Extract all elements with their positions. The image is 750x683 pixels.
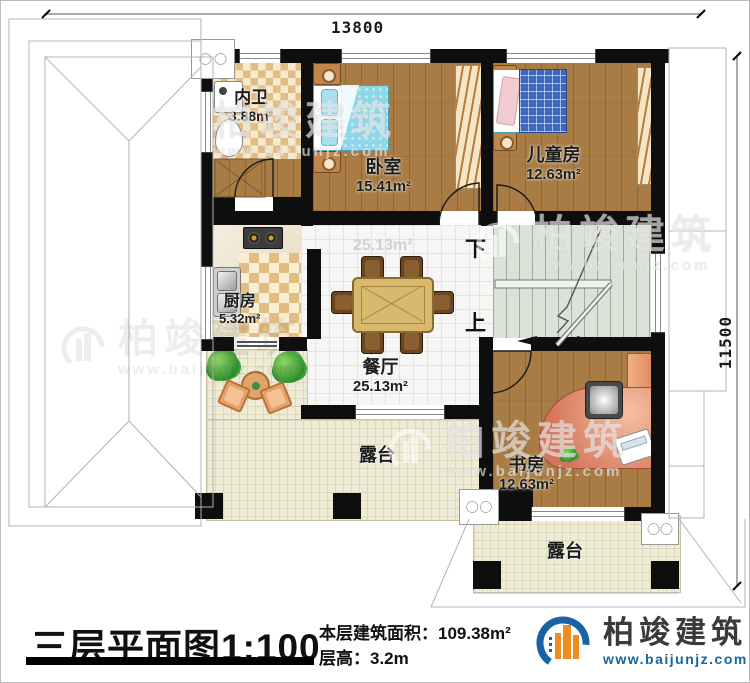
floor-height-line: 层高：3.2m xyxy=(319,644,409,669)
brand-website: www.baijunjz.com xyxy=(603,651,748,667)
bathroom-label: 内卫 3.88m² xyxy=(229,83,273,124)
kitchen-label: 厨房 5.32m² xyxy=(219,287,261,326)
floor-area-label: 本层建筑面积： xyxy=(319,624,438,643)
floor-plan-image: 内卫 3.88m² 卧室 15.41m² 儿童房 12.63m² 厨房 5.32… xyxy=(0,0,750,683)
room-name: 餐厅 xyxy=(362,357,398,377)
room-area: 12.63m² xyxy=(526,167,581,183)
brand-logo-icon xyxy=(533,611,595,673)
floor-area-value: 109.38m² xyxy=(438,624,511,643)
stairs-down-label: 下 xyxy=(465,233,486,263)
terrace-right-label: 露台 xyxy=(547,537,583,563)
floor-height-value: 3.2m xyxy=(370,649,409,668)
floor-height-label: 层高： xyxy=(319,649,370,668)
dining-label: 餐厅 25.13m² xyxy=(353,353,408,395)
room-area: 3.88m² xyxy=(229,108,273,124)
kids-room-label: 儿童房 12.63m² xyxy=(526,141,581,183)
linework-overlay xyxy=(1,1,749,682)
title-underline xyxy=(26,657,314,665)
brand-logo: 柏竣建筑 www.baijunjz.com xyxy=(533,611,748,673)
right-dimension-label: 11500 xyxy=(716,316,735,369)
room-name: 厨房 xyxy=(224,293,256,310)
top-dimension-label: 13800 xyxy=(331,18,384,37)
bedroom-label: 卧室 15.41m² xyxy=(356,153,411,195)
room-area: 5.32m² xyxy=(219,311,261,326)
floor-area-line: 本层建筑面积：109.38m² xyxy=(319,619,511,644)
dining-ghost-area: 25.13m² xyxy=(353,237,413,255)
study-label: 书房 12.63m² xyxy=(499,451,554,493)
room-name: 内卫 xyxy=(234,88,268,107)
stairs-up-label: 上 xyxy=(465,307,486,337)
room-name: 儿童房 xyxy=(526,145,580,165)
room-name: 卧室 xyxy=(365,157,401,177)
terrace-left-label: 露台 xyxy=(359,441,395,467)
room-name: 书房 xyxy=(508,455,544,475)
room-area: 15.41m² xyxy=(356,179,411,195)
room-area: 25.13m² xyxy=(353,379,408,395)
brand-name: 柏竣建筑 xyxy=(603,617,748,648)
room-area: 12.63m² xyxy=(499,477,554,493)
